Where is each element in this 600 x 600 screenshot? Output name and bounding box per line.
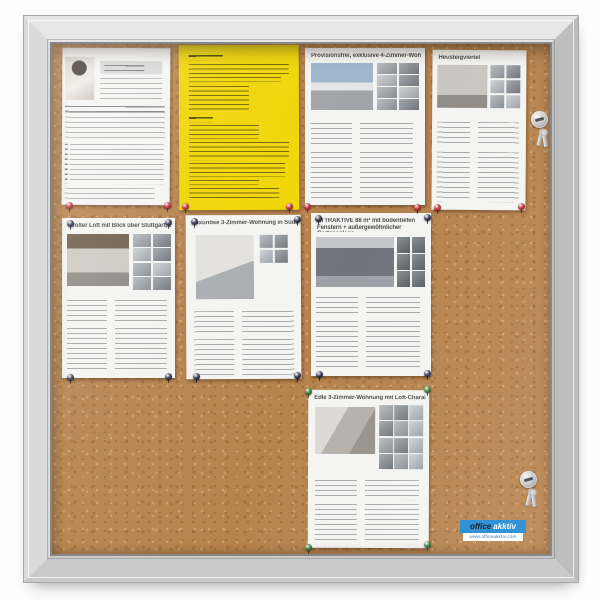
listing-title: Luxuriöse 3-Zimmer-Wohnung in Südlage <box>192 220 297 227</box>
info-title-bar <box>100 61 162 74</box>
paper-listing-88qm: ATTRAKTIVE 88 m² mit bodentiefen Fenster… <box>311 213 431 376</box>
agent-portrait-photo <box>65 57 94 100</box>
brand-sticker: office akktiv www.officeakktiv.com <box>460 520 526 541</box>
pushpin-navy-icon <box>67 220 75 231</box>
listing-details-table <box>316 321 420 371</box>
listing-main-photo <box>67 234 129 286</box>
pushpin-navy-icon <box>316 371 324 382</box>
listing-title: Heusteigviertel <box>438 55 522 62</box>
yellow-paragraph <box>189 142 289 160</box>
pushpin-navy-icon <box>315 215 323 226</box>
yellow-paragraph <box>189 163 285 177</box>
cam-lock-top-icon <box>531 111 548 128</box>
listing-title: Edle 3-Zimmer-Wohnung mit Loft-Charakter <box>314 395 425 402</box>
info-bullet-marks <box>65 144 68 184</box>
pushpin-green-icon <box>305 544 313 554</box>
listing-main-photo <box>437 65 487 108</box>
listing-details-table <box>67 328 167 372</box>
listing-title: ATTRAKTIVE 88 m² mit bodentiefen Fenster… <box>317 218 427 232</box>
listing-thumbnail-grid <box>133 234 171 290</box>
pushpin-red-icon <box>164 202 172 213</box>
yellow-paragraph <box>189 77 281 82</box>
listing-thumbnail-grid <box>379 405 423 469</box>
paper-yellow-notice <box>179 45 300 210</box>
yellow-paragraph <box>189 180 259 185</box>
paper-listing-heusteigviertel: Heusteigviertel <box>431 50 526 211</box>
paper-listing-loft-charakter: Edle 3-Zimmer-Wohnung mit Loft-Charakter <box>308 390 430 548</box>
listing-main-photo <box>311 63 373 110</box>
info-title-text <box>104 65 144 71</box>
listing-main-photo <box>315 407 375 454</box>
listing-thumbnail-grid <box>490 65 520 108</box>
pushpin-navy-icon <box>424 370 432 381</box>
paper-info-sheet <box>62 48 171 206</box>
listing-title: Großer Loft mit Blick über Stuttgart, Gä… <box>68 223 171 230</box>
pushpin-navy-icon <box>165 373 173 384</box>
pushpin-navy-icon <box>424 214 432 225</box>
pushpin-navy-icon <box>165 219 173 230</box>
brand-word-akktiv: akktiv <box>493 522 516 531</box>
listing-main-photo <box>316 237 394 287</box>
listing-main-photo <box>196 235 254 299</box>
listing-details-table <box>311 152 413 200</box>
cam-lock-bottom-icon <box>520 471 537 488</box>
pushpin-navy-icon <box>191 218 199 229</box>
listing-thumbnail-grid <box>377 63 419 110</box>
pushpin-red-icon <box>182 203 190 214</box>
paper-listing-suedlage: Luxuriöse 3-Zimmer-Wohnung in Südlage <box>186 215 302 380</box>
yellow-heading <box>189 55 223 60</box>
paper-listing-loft-stuttgart: Großer Loft mit Blick über Stuttgart, Gä… <box>62 218 175 378</box>
pushpin-red-icon <box>304 203 312 214</box>
pushpin-green-icon <box>424 541 432 552</box>
info-bullet-list <box>70 144 164 184</box>
pushpin-navy-icon <box>294 372 302 383</box>
info-intro-text <box>100 78 162 102</box>
pushpin-navy-icon <box>67 374 75 385</box>
listing-thumbnail-grid <box>260 235 288 263</box>
info-footer-text <box>65 188 155 200</box>
listing-details-table <box>436 152 518 203</box>
pushpin-red-icon <box>66 202 74 213</box>
yellow-address-block <box>189 86 249 112</box>
yellow-paragraph <box>189 125 259 139</box>
listing-price-table <box>194 311 294 334</box>
pushpin-red-icon <box>286 203 294 214</box>
listing-price-table <box>67 300 167 322</box>
key-ring-top-icon <box>535 128 551 150</box>
yellow-subheading <box>189 117 213 122</box>
yellow-paragraph <box>189 64 289 74</box>
pushpin-red-icon <box>518 203 526 214</box>
brand-website: www.officeakktiv.com <box>463 533 523 541</box>
listing-price-table <box>315 480 419 500</box>
listing-title: Provisionsfrei, exklusive 4-Zimmer-Wohnu… <box>311 53 421 60</box>
notice-board: Provisionsfrei, exklusive 4-Zimmer-Wohnu… <box>24 16 578 582</box>
pushpin-green-icon <box>305 388 313 399</box>
product-photo-notice-board: Provisionsfrei, exklusive 4-Zimmer-Wohnu… <box>0 0 600 600</box>
pushpin-navy-icon <box>193 373 201 384</box>
listing-details-table <box>315 504 419 544</box>
listing-price-table <box>316 297 420 315</box>
pushpin-red-icon <box>414 204 422 215</box>
pushpin-navy-icon <box>294 216 302 227</box>
brand-word-office: office <box>470 522 491 531</box>
key-ring-bottom-icon <box>524 488 540 510</box>
cork-back-panel: Provisionsfrei, exklusive 4-Zimmer-Wohnu… <box>52 44 550 554</box>
info-paragraph <box>65 112 165 139</box>
pushpin-green-icon <box>424 386 432 397</box>
listing-thumbnail-grid <box>397 237 425 287</box>
listing-price-table <box>437 122 519 147</box>
listing-details-table <box>194 339 294 376</box>
listing-price-table <box>311 123 413 145</box>
pushpin-red-icon <box>434 204 442 215</box>
yellow-paragraph <box>189 188 279 198</box>
brand-logo: office akktiv <box>460 520 526 533</box>
paper-listing-4-zimmer: Provisionsfrei, exklusive 4-Zimmer-Wohnu… <box>305 48 425 205</box>
